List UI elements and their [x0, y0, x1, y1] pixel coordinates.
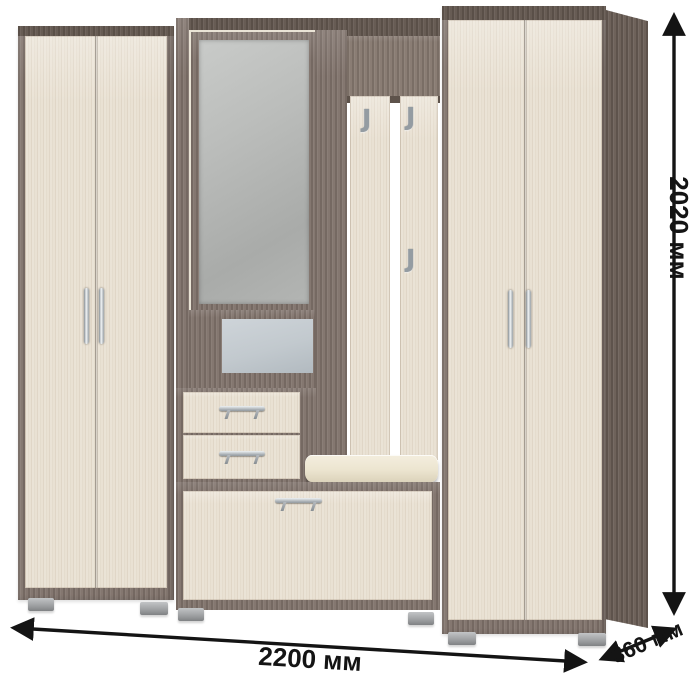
dimension-arrows [0, 0, 700, 686]
furniture-product-image: J J J [0, 0, 700, 686]
height-dimension-label: 2020 мм [663, 148, 694, 308]
